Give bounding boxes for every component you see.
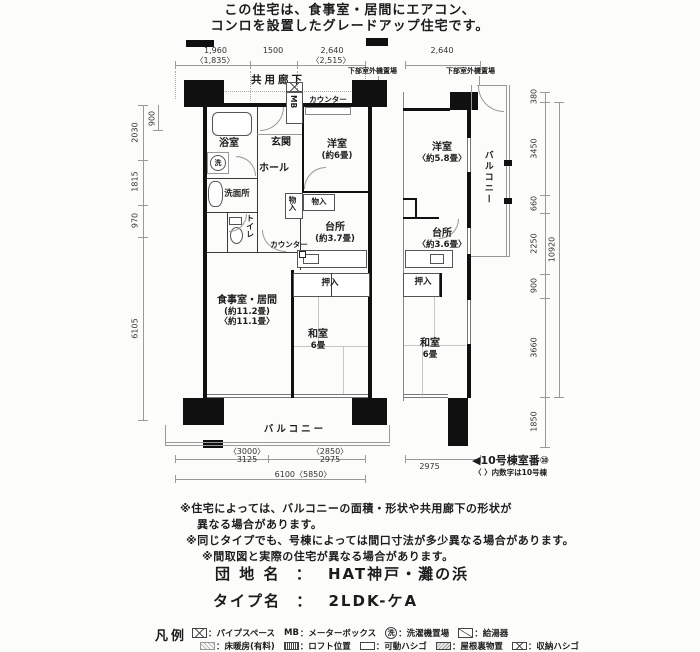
dim-tick	[138, 420, 148, 421]
legend-item-movable-ladder: ：可動ハシゴ	[360, 640, 427, 652]
room-label-bath: 浴室	[207, 138, 251, 150]
room-size: 6畳	[296, 341, 340, 351]
room-name: 和室	[407, 338, 453, 350]
dim-right-1850: 1850	[530, 408, 539, 436]
dim-tick	[138, 237, 148, 238]
room-label-balcony-bottom: バルコニー	[250, 424, 340, 435]
room-label-hall: ホール	[252, 163, 296, 175]
bracket-note: 〈 〉内数字は10号棟	[474, 468, 547, 477]
legend-label: ：収納ハシゴ	[528, 640, 579, 652]
column	[352, 398, 387, 425]
dim-line	[545, 92, 546, 448]
dim-left-900: 900	[148, 107, 157, 131]
note-line: 異なる場合があります。	[197, 516, 322, 532]
column	[448, 398, 468, 446]
dim-tick	[554, 397, 564, 398]
dim-bottom-2975: 2975	[301, 455, 359, 464]
room-name: 台所	[410, 228, 474, 240]
partition	[207, 178, 257, 179]
legend-label: ：洗濯機置場	[398, 627, 449, 639]
room-name: 洋室	[410, 142, 474, 154]
balcony-edge	[471, 85, 472, 110]
legend-item-water-heater: ：給湯器	[458, 627, 508, 639]
dim-line	[405, 459, 480, 460]
room-label-western-right: 洋室 〈約5.8畳〉	[410, 142, 474, 164]
balcony-edge	[471, 256, 509, 257]
balcony-rail	[165, 442, 390, 443]
dim-tick	[540, 92, 550, 93]
room-name: 台所	[305, 222, 365, 234]
type-name-row: タイプ名 ： 2LDK-ケA	[213, 590, 418, 611]
dim-right-total-10920: 10920	[548, 232, 557, 268]
dim-tick	[250, 61, 251, 69]
door-arc	[304, 167, 326, 189]
dim-right-900: 900	[530, 274, 539, 298]
balcony-stop	[504, 198, 512, 204]
room-name: 洋室	[306, 139, 368, 151]
dim-bottom-6100: 6100〈5850〉	[258, 469, 348, 480]
legend-item-meter-box: MB ：メーターボックス	[284, 627, 376, 639]
floor-plan-drawing: 1,960 〈1,835〉 1500 2,640 〈2,515〉 2,640 共…	[0, 38, 700, 500]
washing-machine-label: 洗	[210, 159, 226, 167]
dim-tick	[138, 205, 148, 206]
exterior-wall	[368, 107, 372, 398]
room-label-kitchen-left: 台所 (約3.7畳)	[305, 222, 365, 244]
dim-tick	[405, 61, 406, 69]
tatami-line	[343, 346, 344, 396]
balcony-edge	[165, 425, 166, 445]
dim-bottom-3125: 3125	[218, 455, 276, 464]
room-label-washitsu-left: 和室 6畳	[296, 329, 340, 351]
outdoor-unit-label-left: 下部室外機置場	[348, 67, 397, 75]
dim-tick	[540, 195, 550, 196]
estate-value: HAT神戸・灘の浜	[328, 565, 469, 583]
room-label-kitchen-right: 台所 〈約3.6畳〉	[410, 228, 474, 250]
dim-tick	[554, 102, 564, 103]
column	[450, 92, 478, 110]
meter-box-label: MB	[289, 95, 298, 108]
type-label: タイプ名	[213, 592, 281, 610]
separator: ：	[296, 592, 313, 610]
separator: ：	[296, 565, 313, 583]
room-label-balcony-right: バルコニー	[482, 150, 493, 205]
entrance-step-line	[257, 134, 302, 135]
meter-box-icon: MB	[284, 628, 299, 638]
partition	[257, 107, 258, 252]
balcony-edge	[389, 425, 390, 442]
storage-ladder-icon	[512, 642, 527, 650]
dim-top-2515: 〈2,515〉	[300, 55, 362, 66]
partition	[207, 252, 303, 253]
note-line: ※間取図と実際の住宅が異なる場合があります。	[202, 548, 454, 564]
header-line2: コンロを設置したグレードアップ住宅です。	[0, 19, 700, 35]
pipe-space-icon	[192, 628, 207, 638]
room-label-oshiire-right: 押入	[404, 277, 442, 287]
dim-left-6105: 6105	[131, 314, 140, 344]
room-label-storage-a: 物入	[288, 196, 297, 211]
room-label-dining: 食事室・居間 (約11.2畳) 〈約11.1畳〉	[198, 295, 296, 327]
header-line1: この住宅は、食事室・居間にエアコン、	[0, 3, 700, 19]
dim-tick	[365, 455, 366, 463]
type-value: 2LDK-ケA	[329, 592, 419, 610]
legend-item-pipe-space: ：パイプスペース	[192, 627, 275, 639]
room-label-western-left: 洋室 (約6畳)	[306, 139, 368, 161]
legend-title: 凡例	[155, 625, 187, 644]
counter-top-label: カウンター	[305, 95, 351, 104]
door-arc	[478, 86, 504, 112]
dim-top-1835: 〈1,835〉	[184, 55, 246, 66]
estate-name-row: 団 地 名 ： HAT神戸・灘の浜	[215, 563, 469, 584]
legend-item-attic-storage: ：屋根裏物置	[436, 640, 503, 652]
legend-item-loft-position: ：ロフト位置	[284, 640, 351, 652]
attic-storage-icon	[436, 642, 451, 650]
dim-tick	[138, 160, 148, 161]
dim-line	[158, 105, 159, 130]
dim-right-3450: 3450	[530, 134, 539, 164]
window	[467, 300, 471, 344]
legend-label: ：可動ハシゴ	[376, 640, 427, 652]
counter-shelf	[305, 107, 351, 115]
room-label-washitsu-right: 和室 6畳	[407, 338, 453, 360]
wall	[186, 40, 214, 47]
movable-ladder-icon	[360, 642, 375, 650]
dim-tick	[540, 298, 550, 299]
column	[183, 398, 224, 425]
estate-label: 団 地 名	[215, 565, 280, 583]
interior-wall	[403, 217, 439, 219]
legend-item-floor-heating: ：床暖房(有料)	[200, 640, 275, 652]
dim-left-2030: 2030	[131, 118, 140, 148]
room-size: 6畳	[407, 350, 453, 360]
dim-tick	[175, 455, 176, 463]
dim-top-1500: 1500	[250, 46, 296, 55]
dim-line	[405, 65, 480, 66]
room-name: 食事室・居間	[198, 295, 296, 307]
header-note: この住宅は、食事室・居間にエアコン、 コンロを設置したグレードアップ住宅です。	[0, 3, 700, 36]
room-size: (約3.7畳)	[305, 234, 365, 244]
legend-row-2: ：床暖房(有料) ：ロフト位置 ：可動ハシゴ ：屋根裏物置 ：収納ハシゴ	[200, 640, 579, 652]
interior-wall	[415, 198, 417, 219]
dim-tick	[540, 397, 550, 398]
legend-row-1: ：パイプスペース MB ：メーターボックス 洗 ：洗濯機置場 ：給湯器	[192, 627, 508, 639]
note-line: ※同じタイプでも、号棟によっては間口寸法が多少異なる場合があります。	[186, 532, 574, 548]
dim-left-1815: 1815	[131, 167, 140, 197]
dim-tick	[175, 475, 176, 483]
dim-right-380: 380	[530, 86, 539, 108]
counter-mid-label: カウンター	[266, 240, 312, 249]
dim-bottom-2975-right: 2975	[402, 462, 457, 471]
room-label-oshiire-left: 押入	[310, 278, 350, 288]
legend-item-laundry: 洗 ：洗濯機置場	[385, 627, 449, 639]
dim-left-970: 970	[131, 208, 140, 234]
dim-tick	[138, 105, 148, 106]
wall	[366, 38, 388, 46]
stove	[299, 251, 306, 258]
room-label-entrance: 玄関	[262, 137, 300, 149]
balcony-rail	[509, 85, 510, 257]
dim-line	[143, 105, 144, 420]
corridor-label: 共用廊下	[238, 74, 318, 87]
water-heater-icon	[458, 628, 473, 638]
room-size: 〈約3.6畳〉	[410, 240, 474, 250]
dim-tick	[297, 61, 298, 69]
window	[207, 394, 291, 398]
pipe-space-box	[286, 82, 303, 92]
room-size: (約11.2畳)	[198, 307, 296, 317]
dim-top-2640-right: 2,640	[412, 46, 472, 55]
note-line: ※住宅によっては、バルコニーの面積・形状や共用廊下の形状が	[180, 500, 512, 516]
room-size: (約6畳)	[306, 151, 368, 161]
dim-tick	[540, 102, 550, 103]
laundry-icon: 洗	[385, 627, 397, 639]
dim-line	[559, 102, 560, 397]
partition	[227, 212, 228, 252]
bathtub	[212, 112, 252, 136]
loft-position-icon	[284, 642, 299, 650]
building-room-number: ◀10号棟室番⑩	[472, 454, 549, 467]
legend-item-storage-ladder: ：収納ハシゴ	[512, 640, 579, 652]
legend-label: ：給湯器	[474, 627, 508, 639]
door-arc	[260, 107, 284, 131]
extension-line	[175, 71, 176, 99]
legend-label: ：床暖房(有料)	[216, 640, 275, 652]
room-name: 和室	[296, 329, 340, 341]
dim-right-660: 660	[530, 193, 539, 215]
dim-tick	[365, 475, 366, 483]
floor-heating-icon	[200, 642, 215, 650]
dim-top-1960: 1,960	[188, 46, 243, 55]
legend-label: ：パイプスペース	[208, 627, 275, 639]
cut-edge	[403, 92, 404, 401]
interior-wall	[302, 191, 370, 193]
room-label-washroom: 洗面所	[214, 189, 260, 199]
kitchen-sink	[430, 254, 444, 264]
exterior-wall	[403, 108, 450, 111]
dim-top-2640: 2,640	[304, 46, 360, 55]
room-label-toilet: トイレ	[245, 214, 255, 238]
dim-tick	[540, 447, 550, 448]
room-size: 〈約5.8畳〉	[410, 154, 474, 164]
floor-plan-page: { "header": { "line1": "この住宅は、食事室・居間にエアコ…	[0, 0, 700, 650]
legend-label: ：ロフト位置	[300, 640, 351, 652]
kitchen-counter	[405, 250, 453, 268]
dim-tick	[540, 274, 550, 275]
dim-tick	[175, 61, 176, 69]
legend-label: ：メーターボックス	[300, 627, 376, 639]
room-size-alt: 〈約11.1畳〉	[198, 317, 296, 327]
window	[404, 394, 448, 398]
outdoor-unit-label-right: 下部室外機置場	[446, 67, 495, 75]
balcony-stop	[504, 160, 512, 166]
dim-tick	[540, 213, 550, 214]
window	[294, 394, 368, 398]
dim-right-3660: 3660	[530, 333, 539, 363]
dim-right-2250: 2250	[530, 229, 539, 259]
partition	[207, 212, 257, 213]
room-label-storage-b: 物入	[305, 197, 333, 206]
balcony-rail	[506, 85, 507, 257]
legend-label: ：屋根裏物置	[452, 640, 503, 652]
